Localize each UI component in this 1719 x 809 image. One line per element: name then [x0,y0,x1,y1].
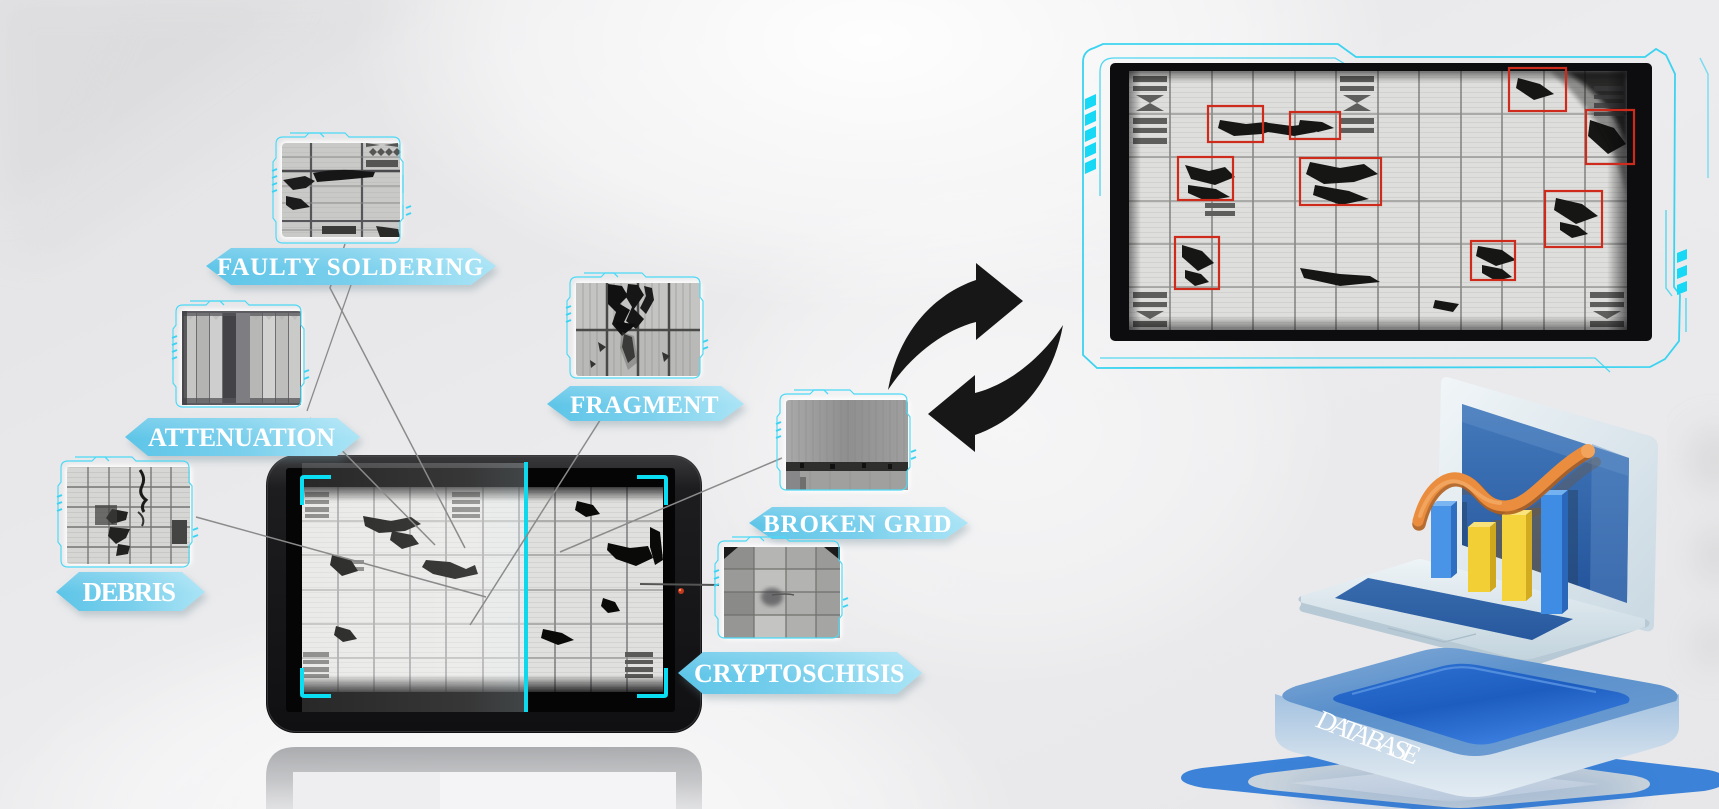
svg-text:DEBRIS: DEBRIS [83,577,178,607]
svg-text:FAULTY SOLDERING: FAULTY SOLDERING [217,254,485,281]
svg-text:ATTENUATION: ATTENUATION [148,423,336,452]
svg-text:FRAGMENT: FRAGMENT [570,392,720,419]
svg-text:CRYPTOSCHISIS: CRYPTOSCHISIS [694,659,906,688]
svg-text:BROKEN GRID: BROKEN GRID [763,511,953,538]
